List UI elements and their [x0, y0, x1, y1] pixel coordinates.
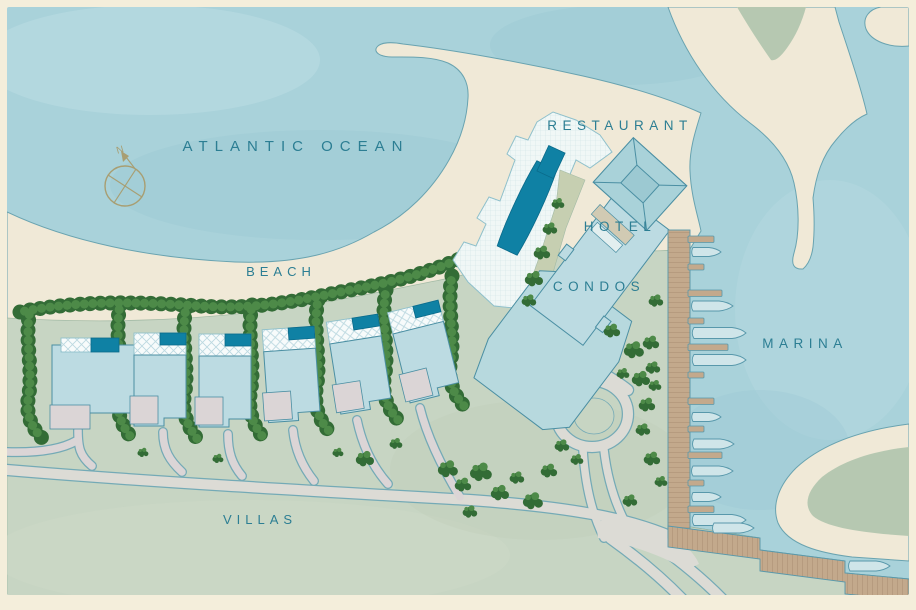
label-restaurant: RESTAURANT — [547, 118, 693, 133]
villa-building — [52, 345, 138, 413]
villa — [195, 334, 251, 427]
label-villas: VILLAS — [223, 512, 297, 527]
villa — [258, 326, 320, 423]
villa-garage — [263, 391, 293, 421]
resort-map: N ATLANTIC OCEAN BEACH RESTAURANT HOTEL … — [0, 0, 916, 610]
marina-boardwalk — [668, 230, 690, 538]
villa-garage — [332, 381, 364, 413]
villa-deck — [61, 338, 91, 352]
label-marina: MARINA — [762, 336, 848, 351]
resort-site-plan: N ATLANTIC OCEAN BEACH RESTAURANT HOTEL … — [0, 0, 916, 610]
label-hotel: HOTEL — [584, 219, 657, 234]
label-atlantic-ocean: ATLANTIC OCEAN — [183, 138, 410, 155]
villa-garage — [130, 396, 158, 424]
villa-garage — [195, 397, 223, 425]
villa-garage — [50, 405, 90, 429]
label-beach: BEACH — [246, 264, 316, 279]
villa-pool — [288, 326, 315, 340]
villa — [130, 333, 186, 426]
villa-pool — [225, 334, 251, 346]
label-condos: CONDOS — [553, 279, 645, 294]
villa-pool — [160, 333, 186, 345]
villa-pool — [91, 338, 119, 352]
